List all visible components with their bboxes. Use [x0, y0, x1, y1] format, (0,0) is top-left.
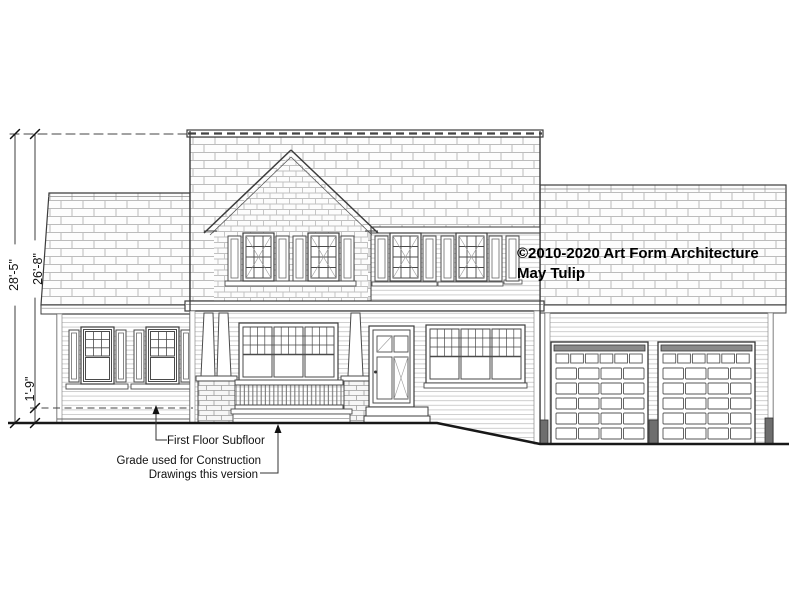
door-transom-right — [394, 336, 408, 352]
garage-foundation-right — [765, 418, 773, 444]
project-name-label: May Tulip — [517, 265, 585, 282]
main-house — [185, 130, 544, 444]
left-wing — [41, 193, 193, 423]
dimension-subfloor-to-grade: 1'-9" — [23, 377, 37, 402]
elevation-sheet: 28'-5" 26'-8" 1'-9" First Floor Subfloor… — [0, 0, 800, 600]
left-wing-eave — [41, 305, 193, 314]
dimension-overall-height: 28'-5" — [7, 259, 21, 291]
annotation-grade: Grade used for Construction Drawings thi… — [117, 424, 282, 481]
grade-note-line2: Drawings this version — [149, 469, 258, 481]
subfloor-label: First Floor Subfloor — [167, 435, 265, 447]
garage-wing — [540, 185, 786, 444]
second-floor-band — [371, 227, 540, 301]
garage-foundation-left — [540, 420, 548, 444]
garage-eave — [540, 305, 786, 313]
door-panel-left — [377, 357, 392, 399]
porch-window — [239, 323, 338, 381]
garage-door-left — [551, 342, 648, 444]
right-triple-window — [424, 325, 527, 388]
grade-note-line1: Grade used for Construction — [117, 455, 261, 467]
door-stoop — [366, 407, 428, 416]
porch-railing — [235, 380, 343, 409]
front-elevation-drawing: 28'-5" 26'-8" 1'-9" First Floor Subfloor… — [0, 0, 800, 600]
garage-door-right — [658, 342, 755, 444]
dimension-ridge-to-subfloor: 26'-8" — [31, 253, 45, 285]
door-knob — [374, 371, 377, 374]
porch-fascia — [185, 301, 544, 311]
left-wing-roof — [41, 193, 190, 305]
porch-deck — [231, 409, 352, 414]
stone-pier-left — [198, 381, 235, 423]
copyright-label: ©2010-2020 Art Form Architecture — [517, 245, 759, 262]
garage-foundation-center — [649, 420, 658, 444]
